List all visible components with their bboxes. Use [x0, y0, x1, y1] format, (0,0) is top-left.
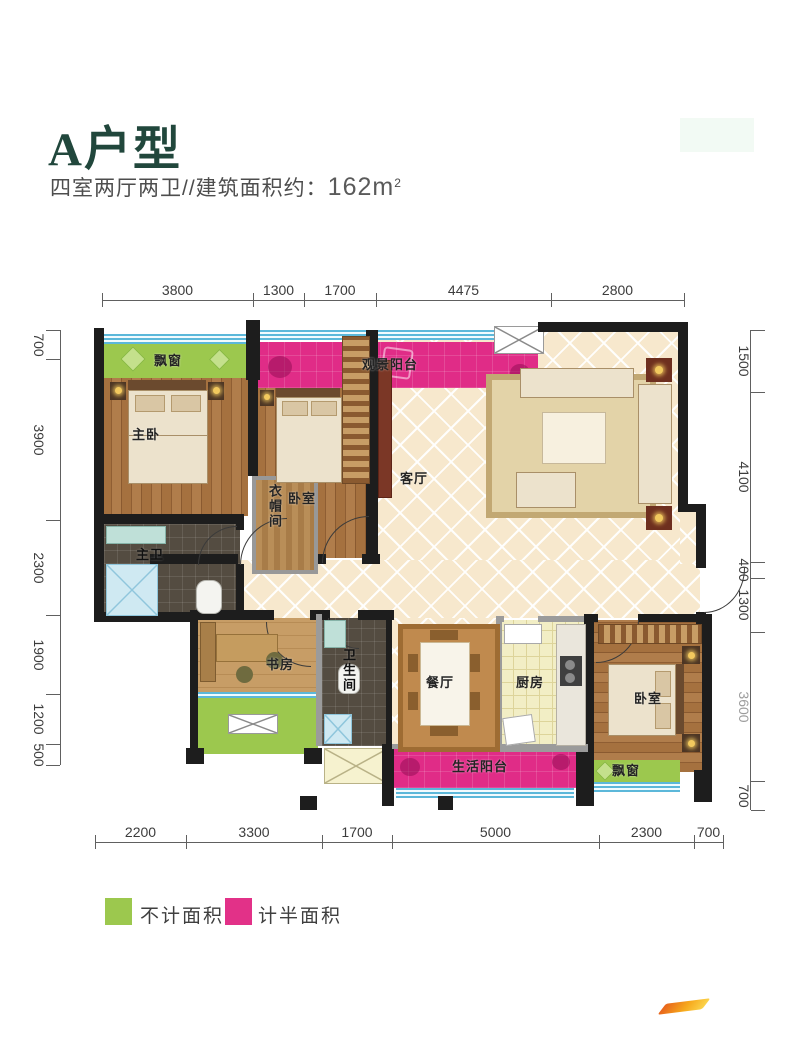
dim-left-5: 1200: [46, 694, 61, 744]
tv-cabinet: [378, 360, 392, 498]
wall: [248, 376, 258, 476]
area-value: 162m: [328, 173, 395, 201]
legend-swatch-pink: [225, 898, 252, 925]
wall: [190, 616, 198, 752]
label-study: 书房: [266, 658, 294, 671]
wardrobe: [598, 624, 702, 644]
balcony-plant: [552, 754, 570, 770]
dim-bottom-1: 2200: [95, 822, 186, 843]
wall: [678, 322, 688, 512]
wall-gray: [316, 614, 322, 746]
lamp-icon: [655, 366, 663, 374]
balcony-plant: [400, 758, 420, 776]
label-bay-window-top: 飘窗: [154, 354, 182, 367]
dining-chair: [430, 630, 458, 640]
burner: [565, 660, 575, 670]
bath2-sink: [324, 620, 346, 648]
wall: [186, 748, 204, 764]
dim-top-2: 1300: [253, 280, 304, 301]
dim-bottom-4: 5000: [392, 822, 599, 843]
dim-bottom-2: 3300: [186, 822, 322, 843]
dining-chair: [408, 654, 418, 672]
master-bed-headboard: [128, 380, 206, 390]
shower-stall: [106, 564, 158, 616]
ac-unit-box: [228, 714, 278, 734]
dim-left-3: 2300: [46, 520, 61, 615]
dim-bottom-5: 2300: [599, 822, 694, 843]
sofa-main: [638, 384, 672, 504]
dim-left-2: 3900: [46, 359, 61, 520]
wall: [638, 614, 712, 622]
legend-label-half-area: 计半面积: [258, 901, 342, 928]
dim-top-3: 1700: [304, 280, 376, 301]
bed-pillow: [135, 395, 165, 412]
dim-right-2: 4100: [750, 392, 765, 562]
legend-swatch-green: [105, 898, 132, 925]
lamp-icon: [655, 514, 663, 522]
wall: [538, 322, 688, 332]
dim-top-5: 2800: [551, 280, 684, 301]
wall: [300, 796, 317, 810]
fridge: [502, 714, 536, 746]
wall: [236, 522, 244, 530]
sofa-top: [520, 368, 634, 398]
wall: [236, 564, 244, 616]
dim-top-1: 3800: [102, 280, 253, 301]
lamp-icon: [213, 387, 220, 394]
dining-chair: [470, 654, 480, 672]
shower-stall: [324, 714, 352, 744]
label-view-balcony: 观景阳台: [362, 358, 418, 371]
wall: [702, 620, 712, 774]
label-dining: 餐厅: [426, 676, 454, 689]
dim-top-4: 4475: [376, 280, 551, 301]
watermark-block: [680, 118, 754, 152]
subtitle-text: 四室两厅两卫//建筑面积约：: [50, 177, 328, 200]
dim-left-1: 700: [46, 330, 61, 359]
ac-unit-box-yellow: [324, 748, 388, 784]
nightstand: [682, 646, 700, 664]
page-title: A户型: [48, 110, 182, 179]
label-bath2: 卫生间: [342, 648, 355, 693]
dim-bottom-3: 1700: [322, 822, 392, 843]
bookshelf: [200, 622, 216, 682]
view-balcony-railing: [260, 330, 532, 340]
dining-chair: [470, 692, 480, 710]
stove: [560, 656, 582, 686]
nightstand: [682, 734, 700, 752]
legend-label-no-area: 不计面积: [140, 901, 224, 928]
bay-window-bottom-glass: [588, 782, 680, 792]
dim-left-6: 500: [46, 744, 61, 765]
nightstand: [260, 390, 274, 406]
lamp-icon: [264, 394, 270, 400]
floor-plan: 主卧 卧室 衣帽间 客厅 主卫 书房 卫生间 餐厅 厨房 卧室 观景阳台 生活阳…: [90, 320, 730, 820]
dining-chair: [408, 692, 418, 710]
dim-left-4: 1900: [46, 615, 61, 694]
wall: [304, 748, 322, 764]
wall-gray: [496, 616, 504, 622]
nightstand: [110, 382, 126, 400]
wall: [96, 514, 244, 524]
label-master-bath: 主卫: [136, 548, 164, 561]
lamp-icon: [688, 740, 695, 747]
label-bedroom2: 卧室: [288, 492, 316, 505]
nightstand: [208, 382, 224, 400]
label-living: 客厅: [400, 472, 428, 485]
side-table: [646, 506, 672, 530]
side-table: [646, 358, 672, 382]
ac-unit-box: [494, 326, 544, 354]
bedroom2-bed: [276, 397, 342, 483]
lamp-icon: [688, 652, 695, 659]
wall: [694, 770, 712, 802]
coffee-table: [542, 412, 606, 464]
bedroom2-bed-headboard: [276, 388, 340, 397]
floorplan-page: A户型 四室两厅两卫//建筑面积约：162m2 3800 1300 1700 4…: [0, 0, 800, 1048]
dim-right-5: 3600: [750, 632, 765, 781]
wall: [382, 744, 394, 806]
page-subtitle: 四室两厅两卫//建筑面积约：162m2: [50, 172, 402, 202]
dim-right-4: 1300: [750, 578, 765, 632]
bay-window-top-glass: [102, 334, 248, 344]
label-life-balcony: 生活阳台: [452, 760, 508, 773]
life-balcony-railing: [396, 788, 574, 798]
wall: [438, 796, 453, 810]
area-superscript: 2: [394, 176, 402, 190]
dim-right-6: 700: [750, 781, 765, 810]
armchair: [516, 472, 576, 508]
dim-bottom-6: 700: [694, 822, 723, 843]
bath-sink-counter: [106, 526, 166, 544]
wall: [94, 328, 104, 620]
chair: [236, 666, 253, 683]
brand-logo-icon: [658, 998, 711, 1014]
label-cloakroom: 衣帽间: [268, 484, 281, 529]
toilet: [196, 580, 222, 614]
dim-right-3: 400: [750, 562, 765, 578]
bed-pillow: [282, 401, 308, 416]
kitchen-sink: [504, 624, 542, 644]
wall: [246, 320, 260, 380]
lamp-icon: [115, 387, 122, 394]
wall-gray: [538, 616, 588, 622]
balcony-plant: [268, 356, 292, 378]
burner: [565, 673, 575, 683]
bed-pillow: [311, 401, 337, 416]
label-bedroom3: 卧室: [634, 692, 662, 705]
wall: [696, 510, 706, 568]
bed-pillow: [171, 395, 201, 412]
dim-right-1: 1500: [750, 330, 765, 392]
label-kitchen: 厨房: [516, 676, 544, 689]
label-master-bedroom: 主卧: [132, 428, 160, 441]
wall: [386, 614, 392, 746]
dining-chair: [430, 726, 458, 736]
label-bay-window-bottom: 飘窗: [612, 764, 640, 777]
bed-pillow: [655, 703, 671, 729]
